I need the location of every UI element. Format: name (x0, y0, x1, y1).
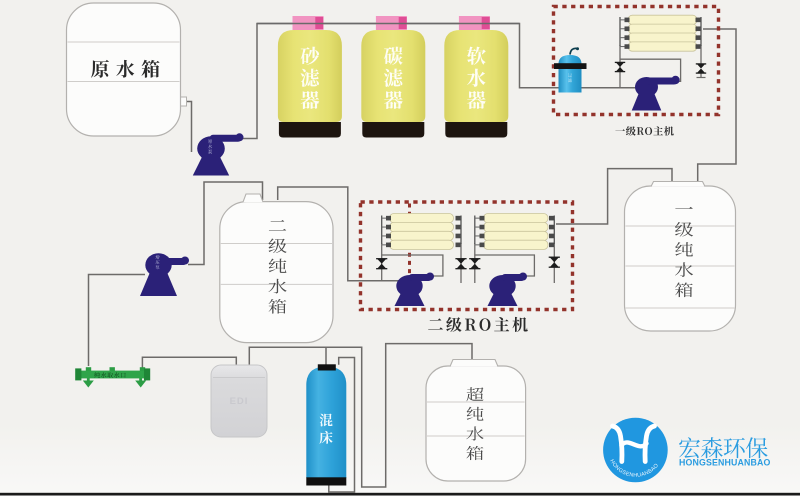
svg-text:EDI: EDI (230, 396, 249, 407)
svg-text:HONGSENHUANBAO: HONGSENHUANBAO (679, 458, 771, 468)
